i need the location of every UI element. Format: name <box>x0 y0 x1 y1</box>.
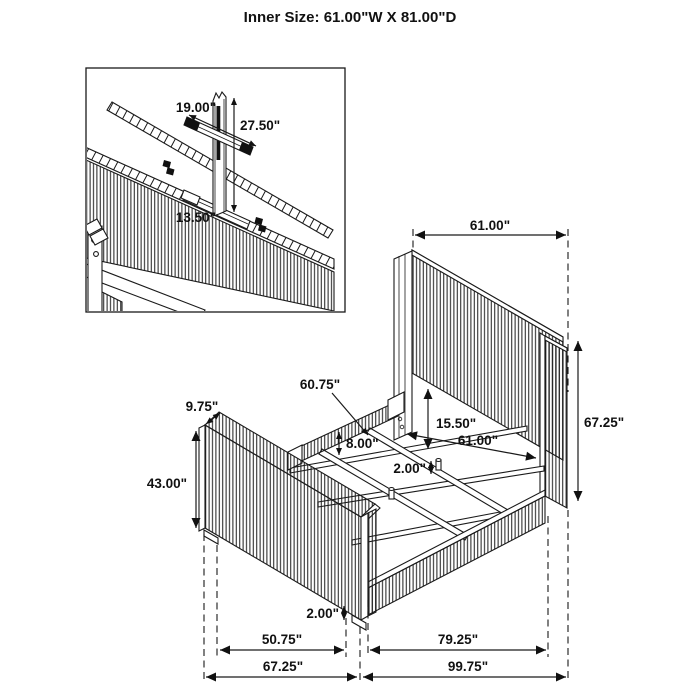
bed-dimension-diagram: Inner Size: 61.00"W X 81.00"D <box>0 0 700 700</box>
footboard-right-return <box>368 509 376 616</box>
footboard-left-cap <box>199 425 205 531</box>
support-peg-top <box>389 488 394 491</box>
bed-dimension-diagram-page: Inner Size: 61.00"W X 81.00"D <box>0 0 700 700</box>
dim-overall-length: 99.75" <box>448 659 488 674</box>
right-rail-body <box>366 496 545 616</box>
inset-detail-box: 19.00" 27.50" 13.50" <box>84 68 345 320</box>
dim-peg-length: 2.00" <box>393 461 426 476</box>
dim-footboard-inner-span: 50.75" <box>262 632 302 647</box>
dim-left-rail-length: 60.75" <box>300 377 340 392</box>
dim-footboard-top-depth: 9.75" <box>186 399 219 414</box>
dim-side-rail-span: 79.25" <box>438 632 478 647</box>
support-peg-top <box>436 459 441 462</box>
dim-panel-to-rail-gap: 15.50" <box>436 416 476 431</box>
right-side-rail <box>366 490 545 616</box>
dim-brace-width: 19.00" <box>176 100 216 115</box>
right-rail-top-face <box>366 490 545 589</box>
dim-rail-height: 8.00" <box>346 436 379 451</box>
dim-support-height: 27.50" <box>240 118 280 133</box>
headboard-right-leg <box>545 336 567 508</box>
footboard-right-cap <box>361 513 368 620</box>
dim-footboard-height: 43.00" <box>147 476 187 491</box>
page-title: Inner Size: 61.00"W X 81.00"D <box>244 9 457 26</box>
inset-bolt-hole <box>94 252 99 257</box>
dim-footboard-overall: 67.25" <box>263 659 303 674</box>
dim-foot-clearance: 2.00" <box>306 606 339 621</box>
dim-cleat-length: 13.50" <box>176 210 216 225</box>
dim-headboard-height: 67.25" <box>584 415 624 430</box>
dim-inner-width: 61.00" <box>458 433 498 448</box>
dim-headboard-width: 61.00" <box>470 218 510 233</box>
